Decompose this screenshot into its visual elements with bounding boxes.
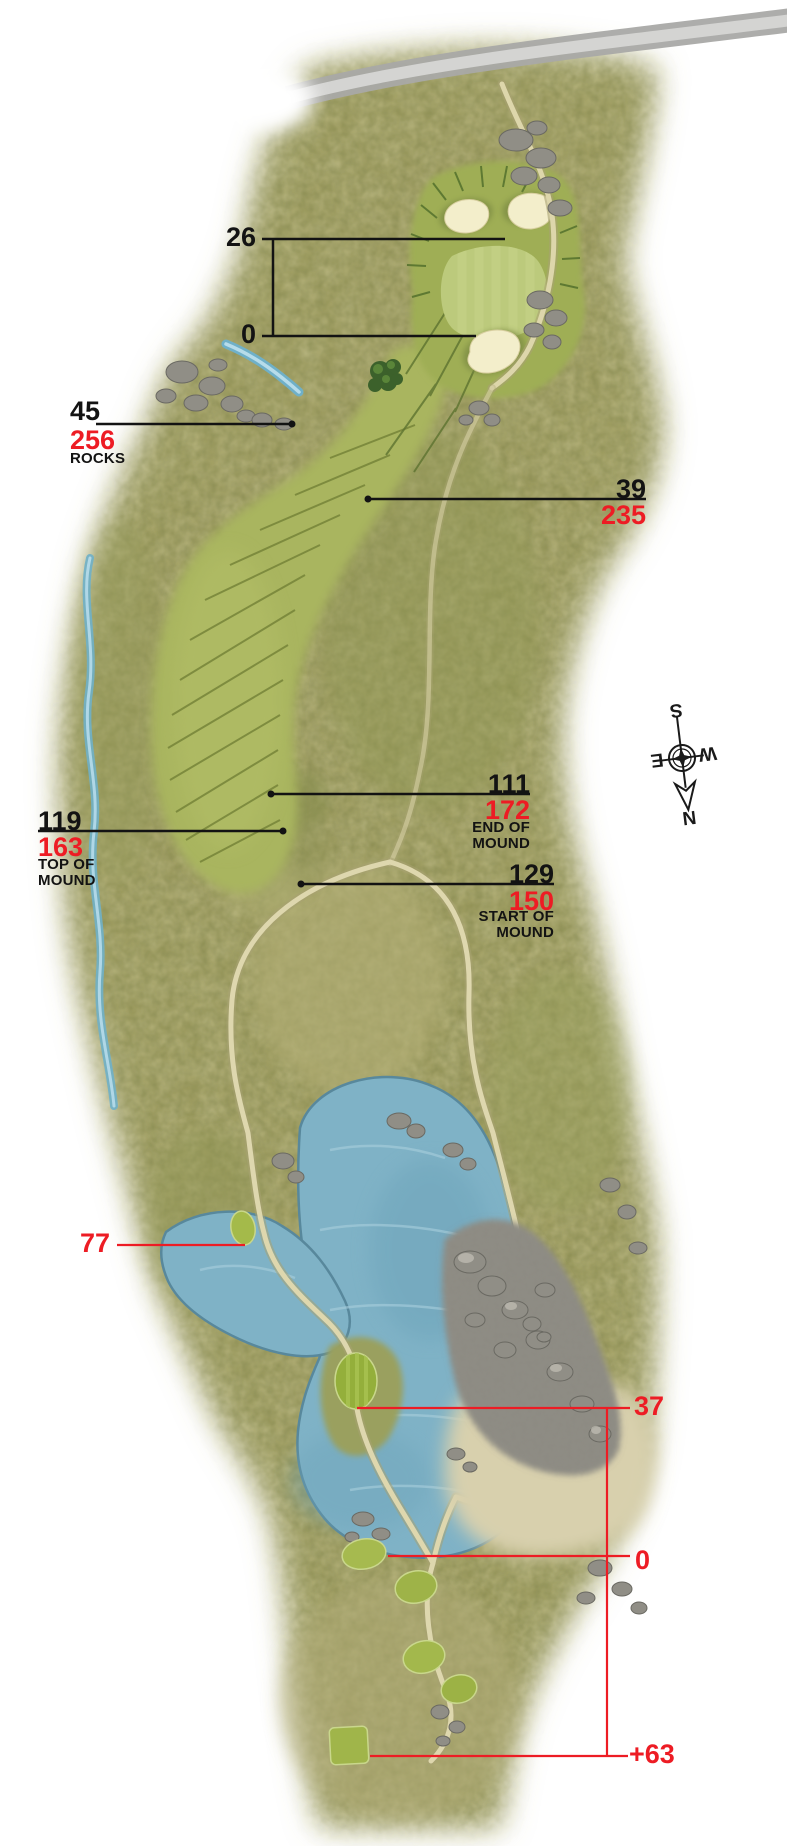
- start-of-mound-caption-line1: START OF: [444, 909, 554, 925]
- main-tee-yardage: 0: [635, 1547, 650, 1574]
- compass-letter-s: S: [669, 699, 684, 721]
- top-of-mound-caption-line2: MOUND: [38, 873, 96, 889]
- rocks-black-yardage: 45: [70, 398, 100, 425]
- compass-letter-e: E: [649, 748, 664, 770]
- end-of-mound-caption-line2: MOUND: [420, 836, 530, 852]
- forward-tee-yardage: 77: [56, 1230, 110, 1257]
- fairway-red-yardage: 235: [566, 502, 646, 529]
- compass-letter-w: W: [697, 742, 717, 765]
- top-of-mound-black-yardage: 119: [38, 808, 82, 835]
- back-tee-pad: [329, 1726, 369, 1765]
- end-of-mound-caption-line1: END OF: [420, 820, 530, 836]
- island-tee-yardage: 37: [634, 1393, 664, 1420]
- green-front-yardage: 0: [176, 321, 256, 348]
- fairway-black-yardage: 39: [566, 476, 646, 503]
- start-of-mound-black-yardage: 129: [444, 861, 554, 888]
- back-tee-yardage: +63: [629, 1741, 675, 1768]
- rocks-caption: ROCKS: [70, 451, 125, 467]
- golf-hole-map: N S E W 26 0 45 256 ROCKS 39 235 111 172…: [0, 0, 787, 1846]
- compass-letter-n: N: [681, 806, 697, 829]
- green-back-yardage: 26: [176, 224, 256, 251]
- compass-icon: N S E W: [644, 695, 726, 831]
- top-of-mound-caption-line1: TOP OF: [38, 857, 95, 873]
- start-of-mound-caption-line2: MOUND: [444, 925, 554, 941]
- end-of-mound-black-yardage: 111: [420, 771, 530, 798]
- course-art: N S E W: [0, 0, 787, 1846]
